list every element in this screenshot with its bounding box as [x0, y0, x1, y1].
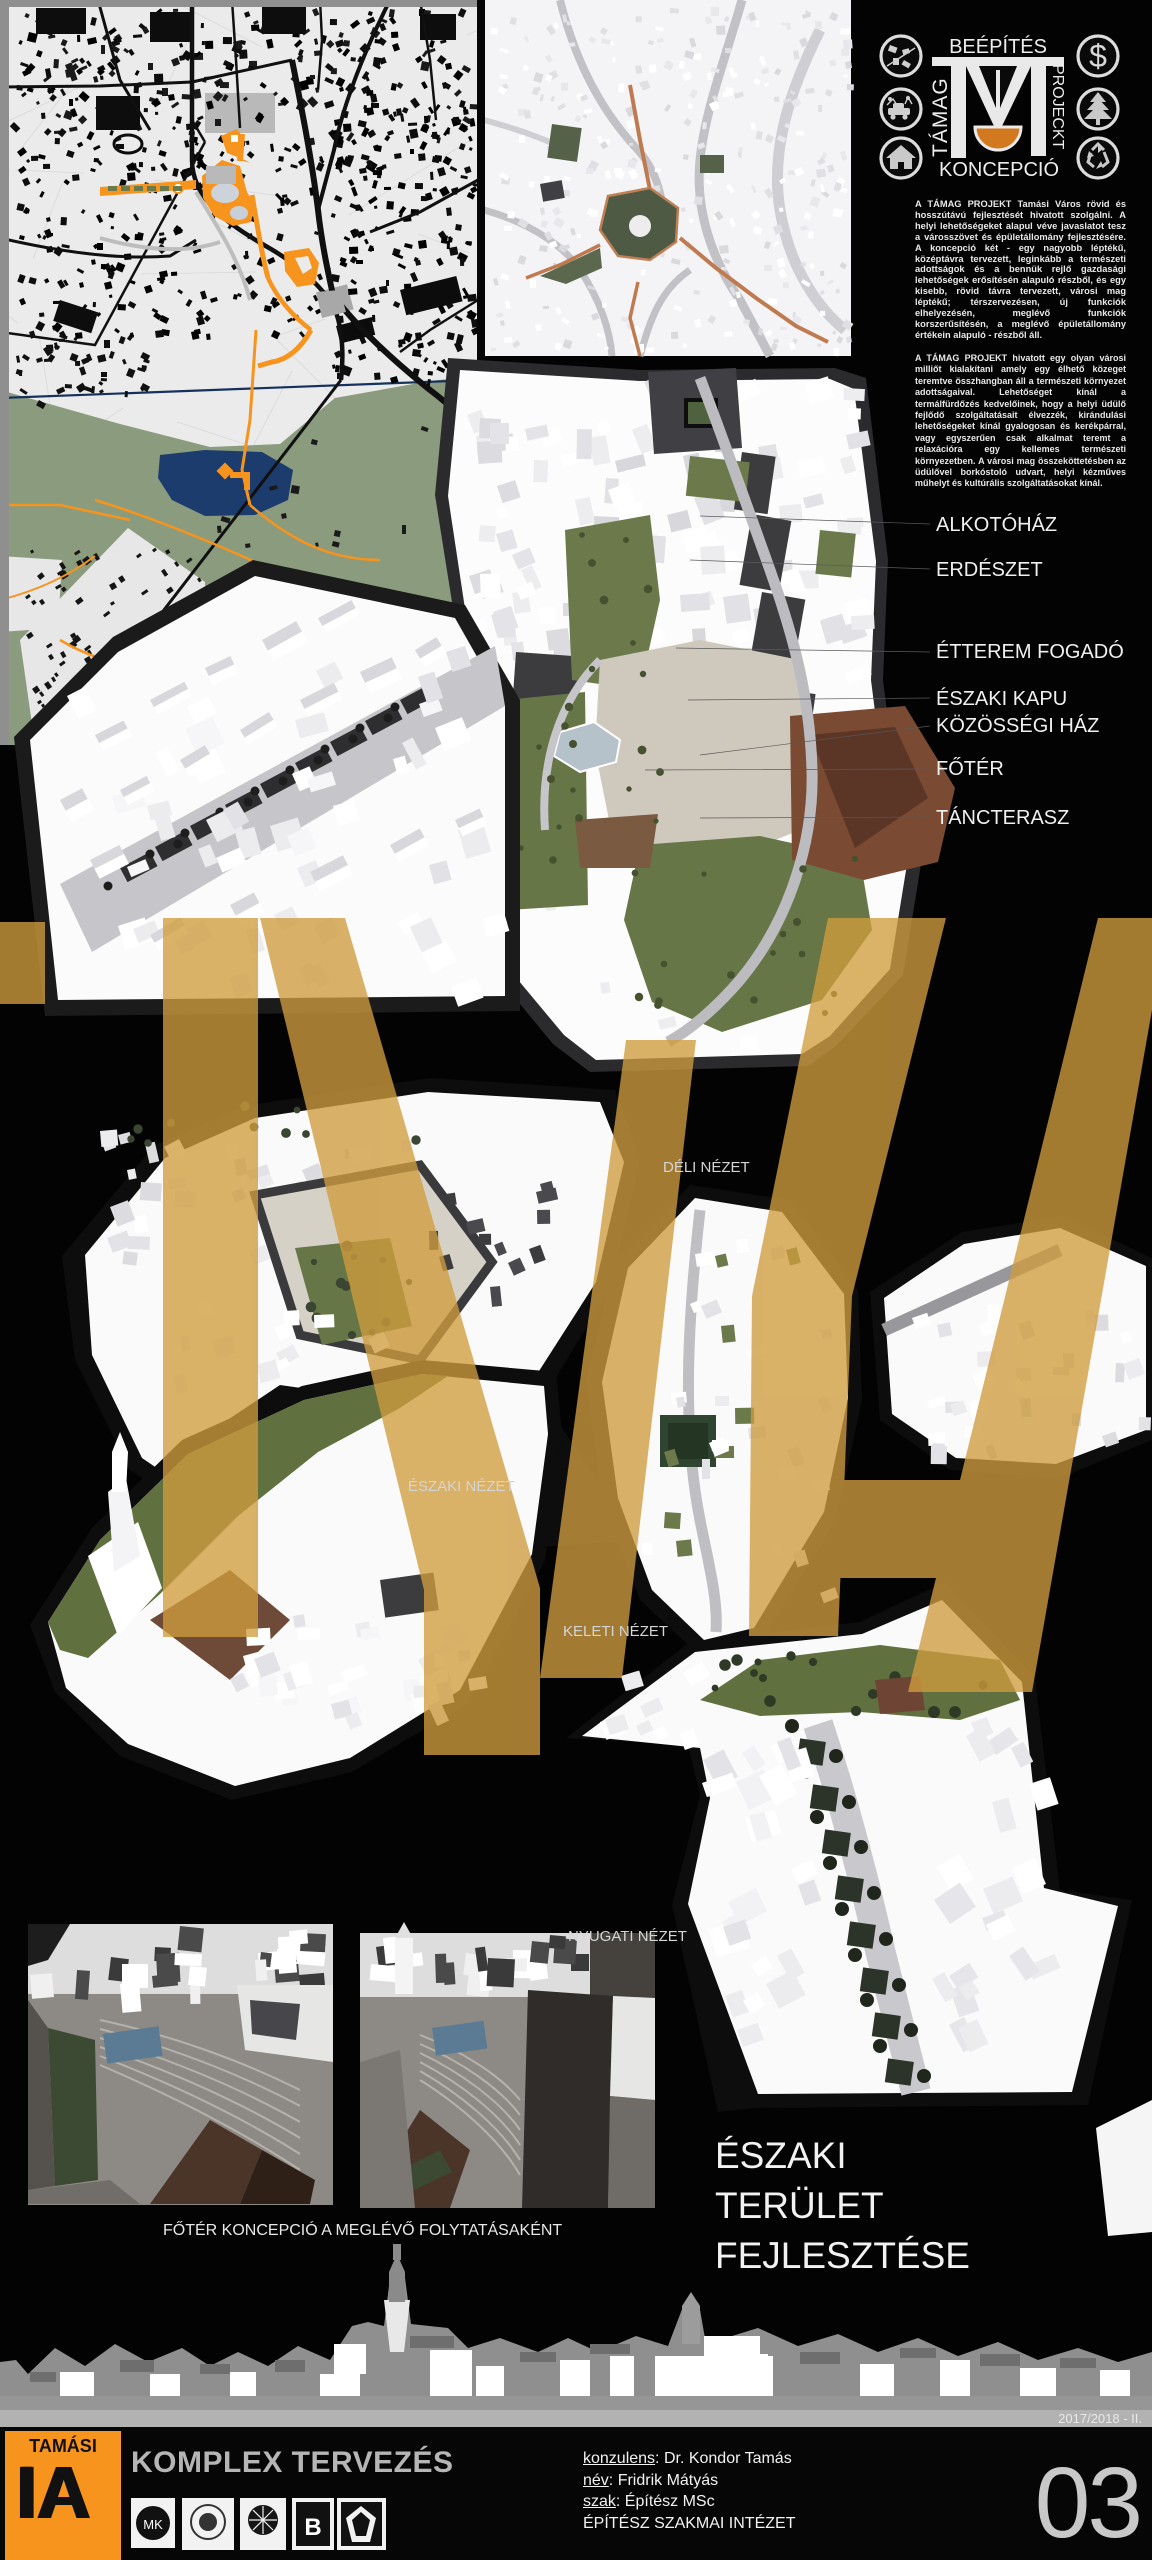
svg-text:MK: MK [143, 2517, 163, 2532]
svg-text:B: B [304, 2514, 321, 2541]
svg-text:$: $ [1089, 38, 1107, 74]
